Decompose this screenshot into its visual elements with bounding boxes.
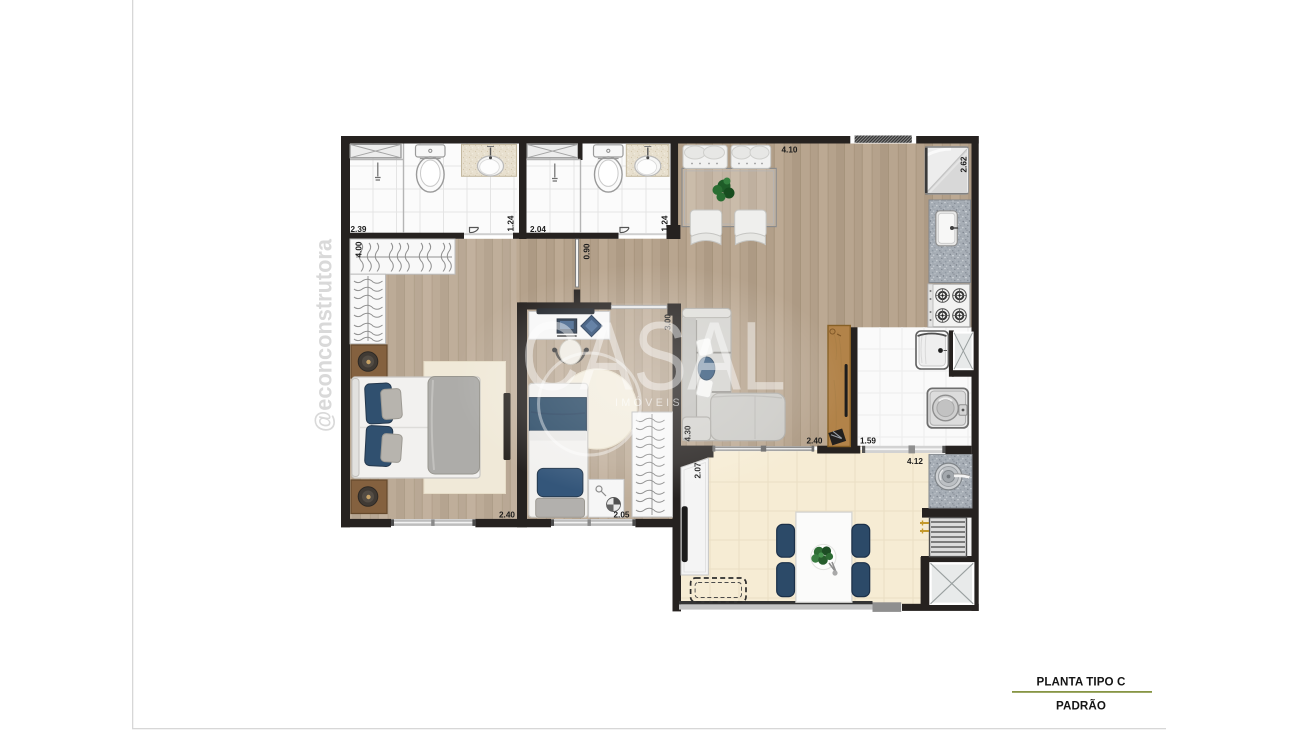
svg-text:1.59: 1.59 bbox=[860, 437, 876, 446]
svg-text:0.90: 0.90 bbox=[583, 243, 592, 259]
svg-text:2.04: 2.04 bbox=[530, 225, 546, 234]
svg-text:CASAL: CASAL bbox=[521, 301, 786, 410]
svg-text:1.24: 1.24 bbox=[661, 215, 670, 231]
svg-text:4.00: 4.00 bbox=[355, 241, 364, 257]
svg-text:2.05: 2.05 bbox=[614, 511, 630, 520]
svg-text:1.24: 1.24 bbox=[507, 215, 516, 231]
svg-text:4.12: 4.12 bbox=[907, 457, 923, 466]
svg-text:IMÓVEIS: IMÓVEIS bbox=[615, 396, 683, 409]
svg-text:2.40: 2.40 bbox=[499, 511, 515, 520]
svg-text:4.10: 4.10 bbox=[782, 146, 798, 155]
svg-text:PADRÃO: PADRÃO bbox=[1056, 700, 1106, 713]
svg-text:PLANTA TIPO C: PLANTA TIPO C bbox=[1037, 676, 1126, 689]
svg-text:@econconstrutora: @econconstrutora bbox=[310, 239, 336, 432]
svg-text:2.39: 2.39 bbox=[351, 225, 367, 234]
svg-text:2.62: 2.62 bbox=[960, 156, 969, 172]
